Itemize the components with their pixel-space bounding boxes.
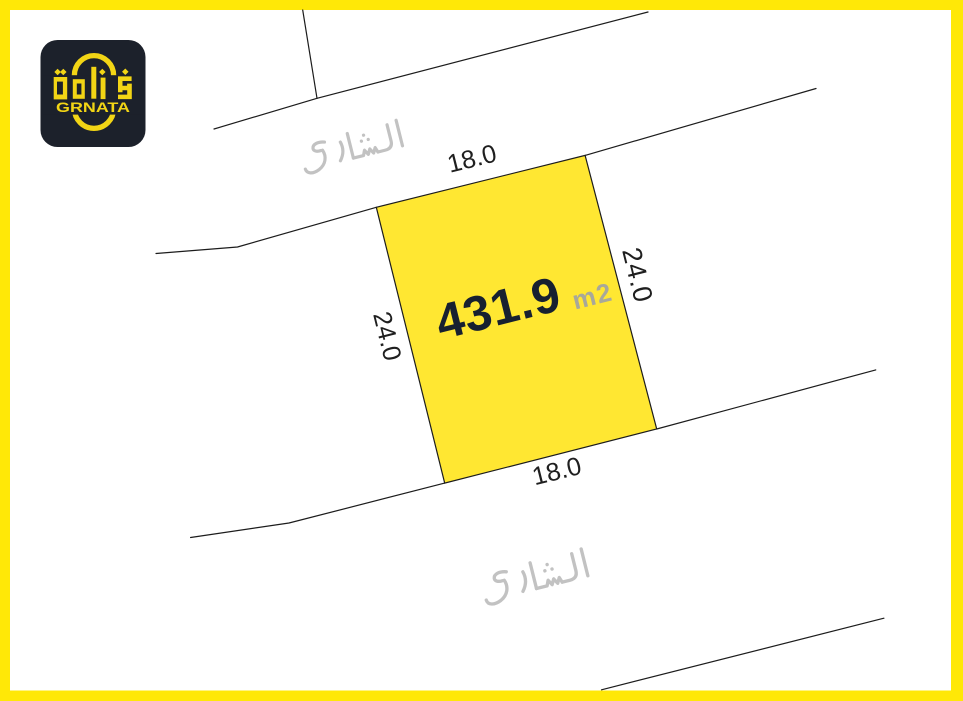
svg-text:GRNATA: GRNATA <box>56 99 130 115</box>
